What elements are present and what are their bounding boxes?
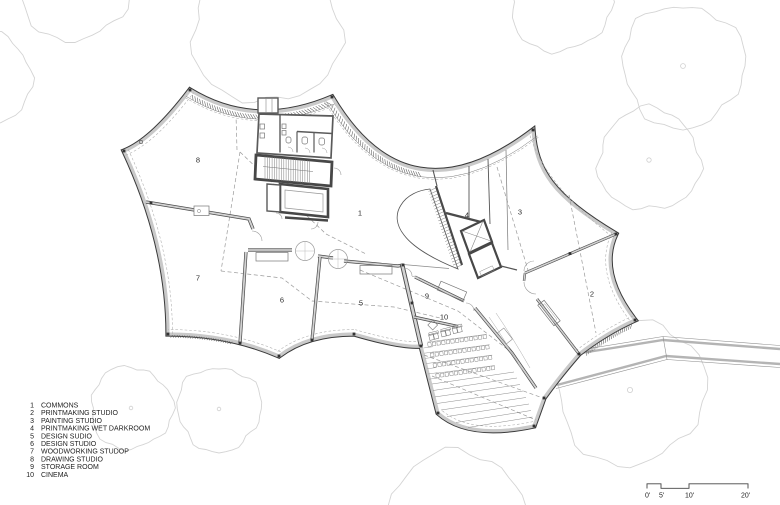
svg-text:6: 6 [280, 296, 284, 305]
svg-text:10': 10' [685, 493, 694, 500]
svg-text:DESIGN SUDIO: DESIGN SUDIO [41, 433, 93, 440]
svg-text:8: 8 [196, 156, 200, 165]
svg-text:WOODWORKING STUDOP: WOODWORKING STUDOP [41, 449, 129, 456]
svg-text:2: 2 [30, 410, 34, 417]
svg-text:5': 5' [659, 493, 664, 500]
svg-text:4: 4 [30, 426, 34, 433]
svg-text:10: 10 [440, 313, 448, 322]
svg-text:10: 10 [26, 472, 34, 479]
svg-text:3: 3 [518, 208, 522, 217]
svg-text:DESIGN STUDIO: DESIGN STUDIO [41, 441, 97, 448]
svg-text:COMMONS: COMMONS [41, 403, 79, 410]
svg-text:PRINTMAKING STUDIO: PRINTMAKING STUDIO [41, 410, 119, 417]
svg-text:DRAWING STUDIO: DRAWING STUDIO [41, 456, 104, 463]
svg-text:6: 6 [30, 441, 34, 448]
svg-text:5: 5 [30, 433, 34, 440]
svg-text:1: 1 [30, 403, 34, 410]
svg-text:8: 8 [30, 456, 34, 463]
svg-text:20': 20' [741, 493, 750, 500]
svg-text:9: 9 [425, 292, 429, 301]
svg-text:1: 1 [358, 209, 362, 218]
svg-text:4: 4 [465, 211, 469, 220]
svg-text:5: 5 [359, 299, 363, 308]
svg-text:CINEMA: CINEMA [41, 472, 69, 479]
svg-text:3: 3 [30, 418, 34, 425]
svg-text:9: 9 [30, 464, 34, 471]
svg-text:PAINTING STUDIO: PAINTING STUDIO [41, 418, 102, 425]
svg-text:7: 7 [30, 449, 34, 456]
svg-text:0': 0' [645, 493, 650, 500]
svg-text:7: 7 [196, 274, 200, 283]
svg-text:PRINTMAKING WET DARKROOM: PRINTMAKING WET DARKROOM [41, 426, 150, 433]
svg-text:2: 2 [590, 290, 594, 299]
svg-text:STORAGE ROOM: STORAGE ROOM [41, 464, 99, 471]
